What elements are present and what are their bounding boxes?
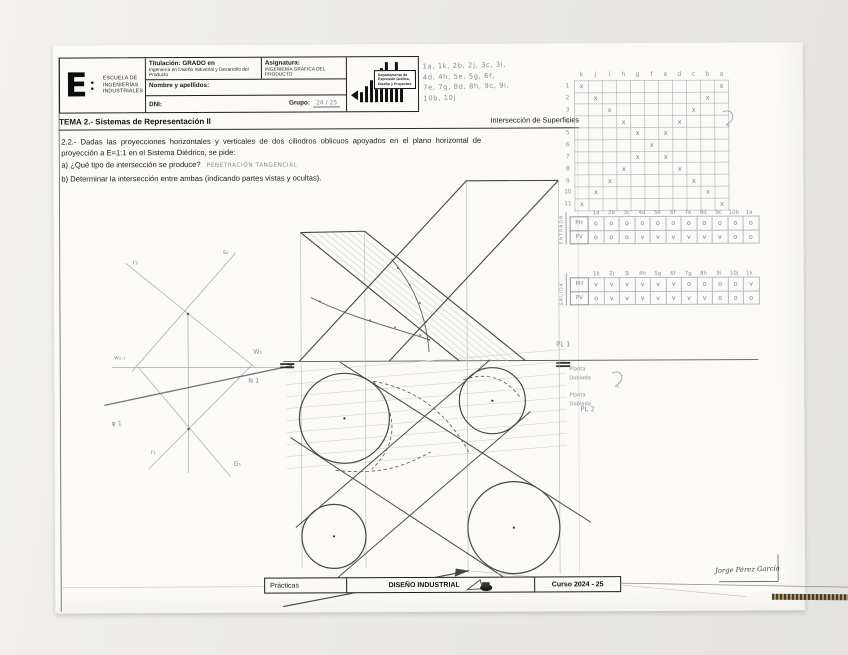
paper-sheet: PL 1PL 2PlantaDobladaPlantaDobladar₂s₂w₂… [0,0,848,655]
drawing-label: φ 1 [111,419,121,427]
header-title-block: E ● ● ESCUELA DE INGENIERÍAS INDUSTRIALE… [59,56,419,114]
salida-table: SALIDA1k2j3i4h5g6f7g8h9i10j1kPHvvvvvvooo… [560,271,760,306]
department-logo: Departamento de Expresión Gráfica, Diseñ… [346,57,418,111]
drawing-label: r₂ [133,258,139,266]
plan-cylinder-outlines [290,359,591,589]
elevation-hatch [309,232,516,362]
problem-statement: 2.2.- Dadas las proyecciones horizontale… [61,135,481,185]
dni-grupo-row: DNI: Grupo: 24 / 25 [146,95,346,112]
school-name: ESCUELA DE INGENIERÍAS INDUSTRIALES [103,76,143,95]
drawing-label: w₂.₁ [114,355,125,361]
drawing-label: G₁ [234,460,242,468]
elevation-cylinders [298,180,559,361]
tema-title: TEMA 2.- Sistemas de Representación II [59,117,211,127]
item-a: a) ¿Qué tipo de intersección se produce?… [61,158,481,173]
scanned-worksheet: PL 1PL 2PlantaDobladaPlantaDobladar₂s₂w₂… [0,0,848,655]
drawing-label: Doblada [569,375,591,381]
drawing-label: Doblada [569,401,591,407]
footer-curso: Curso 2024 - 25 [534,577,620,591]
grupo-handwritten-value: 24 / 25 [313,99,340,107]
footer-bar: Prácticas DISEÑO INDUSTRIAL Curso 2024 -… [264,576,621,594]
drafting-logo-icon [465,578,493,591]
footer-center: DISEÑO INDUSTRIAL [347,578,534,592]
drawing-label: s₂ [223,248,229,256]
titulacion-field: Titulación: GRADO en Ingeniería en Diseñ… [146,58,262,80]
nombre-field: Nombre y apellidos: [146,79,346,96]
school-logo-dots: ● ● [90,80,97,92]
handwritten-pair-list: 1a, 1k, 2b, 2j, 3c, 3i, 4d, 4h, 5e, 5g, … [422,58,583,104]
drawing-label: N 1 [248,377,259,385]
grupo-field: Grupo: 24 / 25 [289,99,340,107]
projection-lines [300,180,560,574]
school-logo: E ● ● ESCUELA DE INGENIERÍAS INDUSTRIALE… [60,58,146,112]
handwritten-answer: PENETRACIÓN TANGENCIAL [207,163,298,169]
department-name-box: Departamento de Expresión Gráfica, Diseñ… [374,70,416,89]
drawing-label: Planta [569,366,585,372]
header-fields: Titulación: GRADO en Ingeniería en Diseñ… [146,57,346,112]
item-b: b) Determinar la intersección entre amba… [61,172,481,185]
ground-line [280,360,758,368]
drawing-label: Planta [569,392,585,398]
aux-direction-diagram [104,253,293,478]
school-logo-e: E [65,70,88,100]
drawing-label: W₂ [253,348,262,356]
tema-line: TEMA 2.- Sistemas de Representación II I… [59,115,579,130]
statement-text: 2.2.- Dadas las proyecciones horizontale… [61,135,481,159]
entrada-table: ENTRADA1a2b3c4d5e6f7e8d9c10b1aPHoooooooo… [560,210,760,245]
asignatura-field: Asignatura: INGENIERÍA GRÁFICA DEL PRODU… [262,57,346,78]
footer-practicas: Prácticas [265,578,347,592]
drawing-label: PL 1 [556,340,570,348]
binding-edge [772,594,848,601]
answer-grid-table: kjihgfedcba1xx2xx3xx4xx5xx6x7xx8xx9xx10x… [561,69,730,211]
dni-label: DNI: [149,101,162,108]
drawing-label: r₁ [151,448,157,456]
